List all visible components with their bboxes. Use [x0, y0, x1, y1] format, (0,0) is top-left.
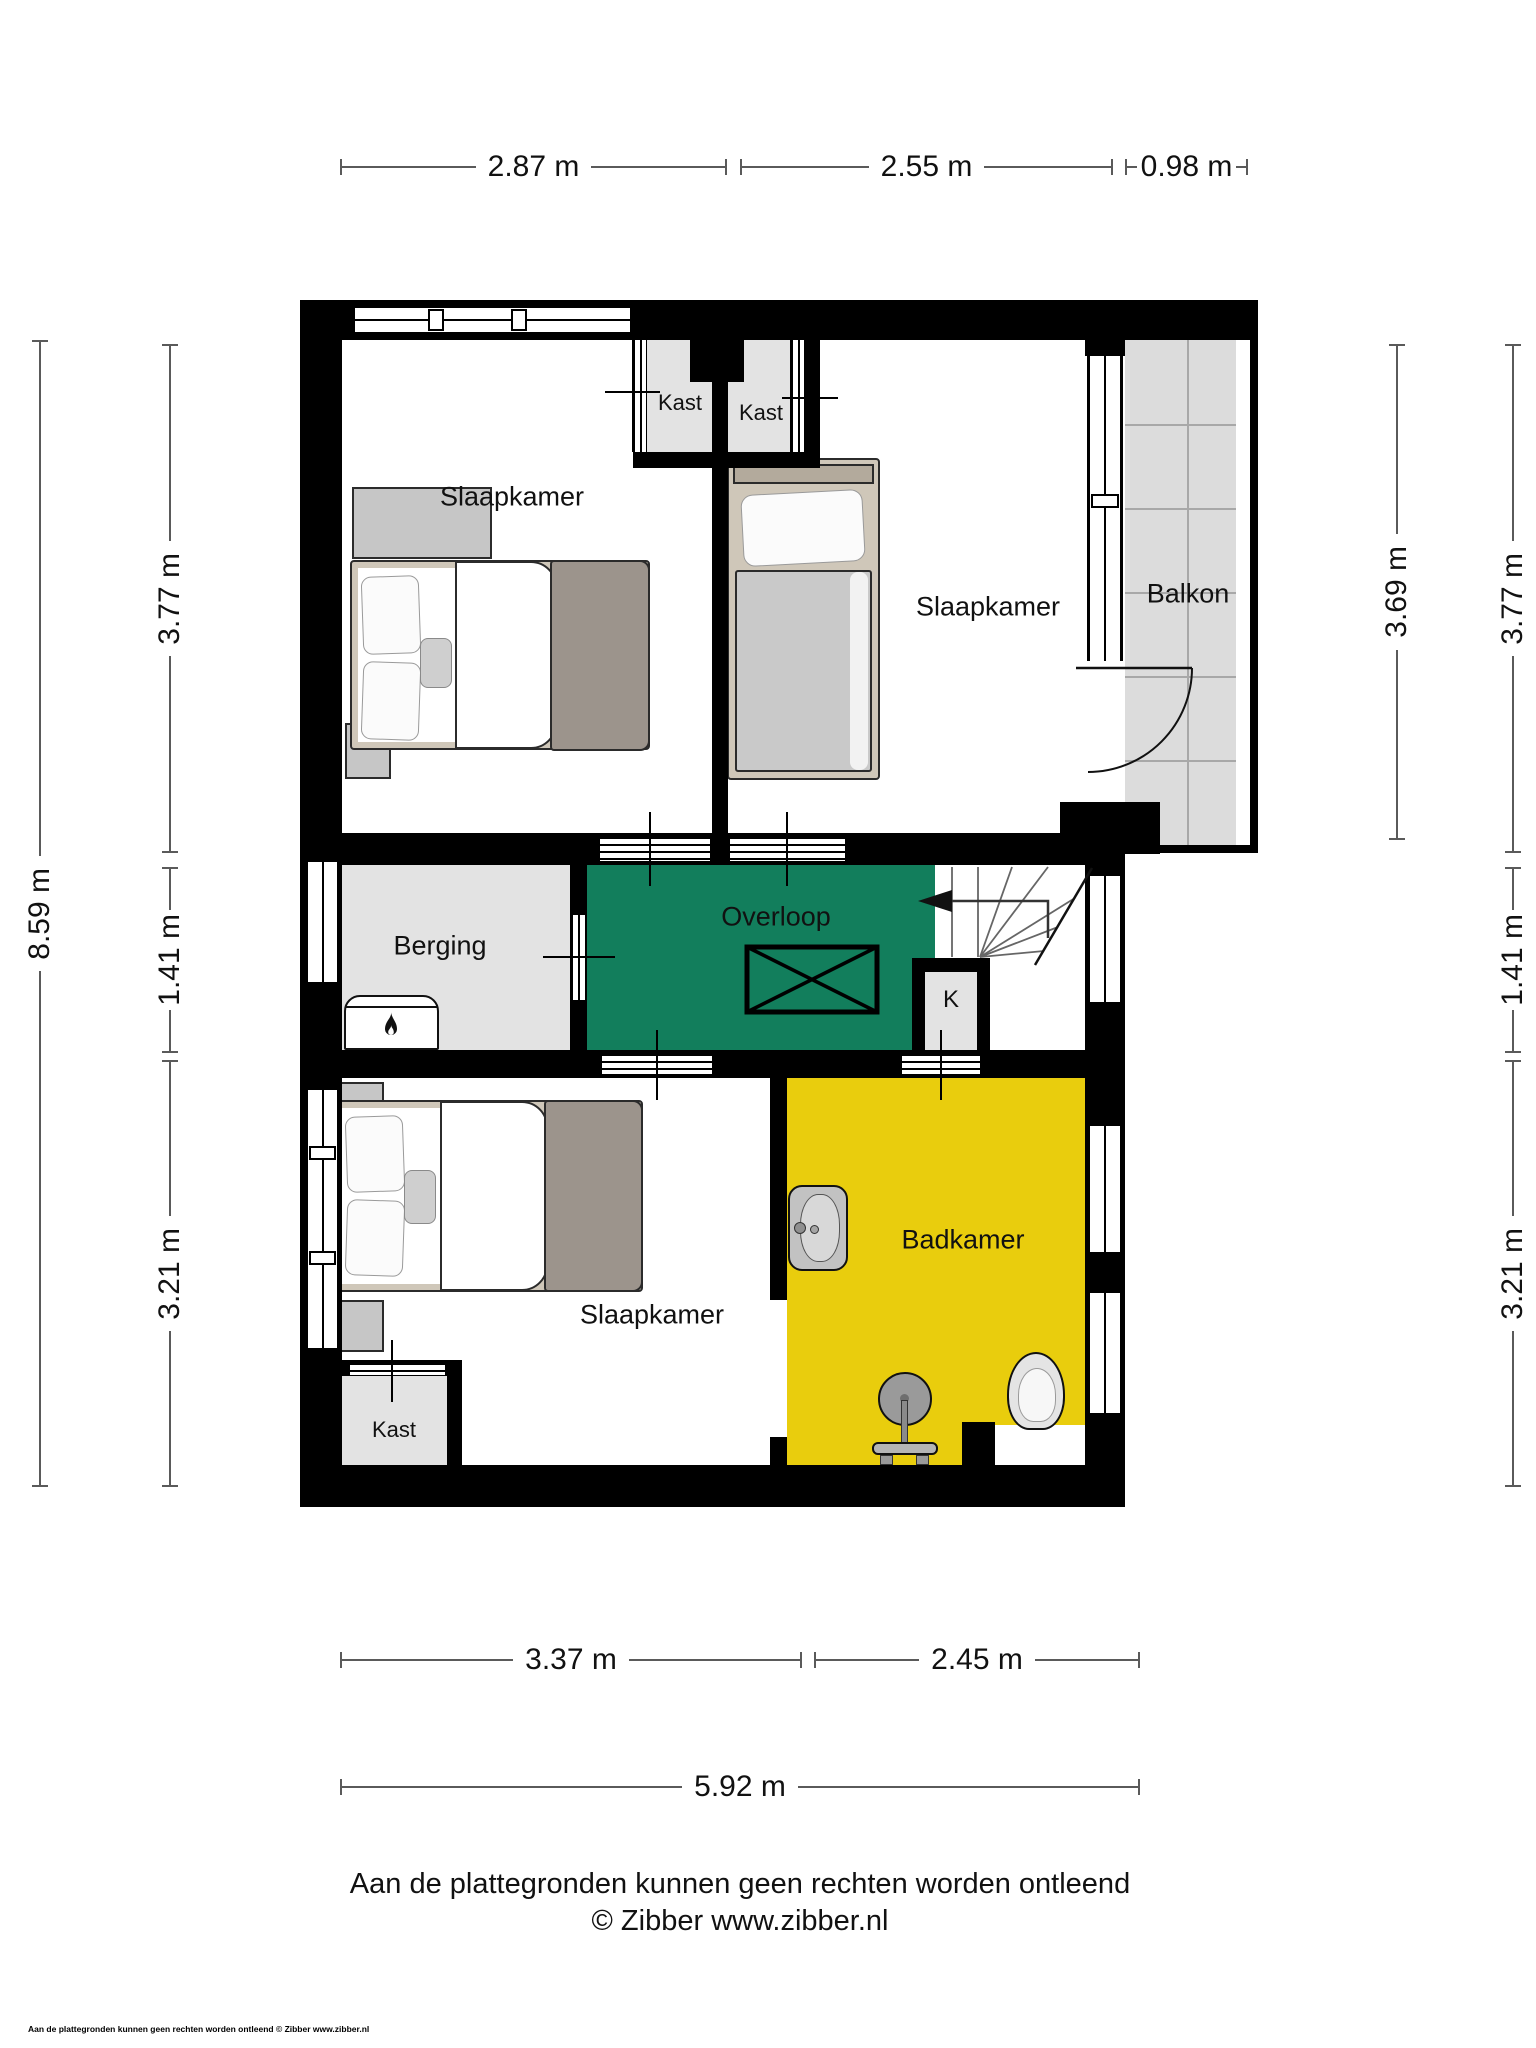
wall	[962, 1422, 995, 1467]
shower-faucet-bar	[872, 1442, 938, 1455]
stair-direction-line	[950, 901, 1048, 938]
pillow	[740, 489, 866, 567]
dimension-left-total: 8.59 m	[25, 340, 55, 1487]
room-label-balkon: Balkon	[1147, 579, 1230, 610]
cushion	[404, 1170, 436, 1224]
balcony-tile-line	[1125, 676, 1236, 678]
window	[355, 305, 630, 335]
floorplan-canvas: Slaapkamer Kast Kast Slaapkamer Balkon B…	[0, 0, 1536, 2048]
window-mullion	[511, 309, 527, 331]
toilet-seat	[1018, 1368, 1056, 1422]
wall	[570, 865, 587, 915]
wall	[977, 958, 990, 1050]
cushion	[420, 638, 452, 688]
balcony-parapet	[1250, 340, 1258, 853]
room-label-kast-3: Kast	[372, 1417, 416, 1443]
dimension-right-balkon: 3.69 m	[1382, 344, 1412, 840]
wall	[342, 833, 1085, 865]
door-kast-2	[790, 340, 805, 452]
window-mullion	[309, 1251, 336, 1265]
window-mullion	[1091, 494, 1119, 508]
door-kast-3	[350, 1362, 445, 1376]
room-label-kast-2: Kast	[739, 400, 783, 426]
pillow	[345, 1115, 406, 1193]
pillow	[361, 661, 422, 741]
dimension-right-2: 1.41 m	[1498, 867, 1528, 1053]
pillow	[361, 575, 422, 655]
staircase	[952, 867, 1075, 957]
balcony-glass-wall	[1087, 356, 1123, 661]
dimension-top-3: 0.98 m	[1125, 152, 1248, 182]
wall	[633, 452, 805, 468]
balcony-tile-line	[1125, 508, 1236, 510]
door-tick	[649, 812, 651, 886]
bed-blanket	[550, 560, 650, 751]
door-overloop-slaapkamer-1	[600, 836, 710, 862]
boiler	[344, 995, 439, 1050]
window	[1087, 876, 1123, 1002]
boiler-arch	[346, 997, 437, 1008]
room-overloop	[587, 865, 935, 1050]
room-label-slaapkamer-3: Slaapkamer	[580, 1300, 724, 1331]
wall	[447, 1360, 462, 1467]
toilet	[1007, 1352, 1065, 1430]
dimension-bottom-2: 2.45 m	[814, 1645, 1140, 1675]
wall	[770, 1078, 787, 1300]
balcony-edge-gap	[1236, 340, 1250, 845]
wall	[570, 1000, 587, 1050]
footer-disclaimer: Aan de plattegronden kunnen geen rechten…	[350, 1868, 1130, 1901]
room-label-berging: Berging	[393, 931, 486, 962]
window	[305, 1090, 340, 1348]
door-tick	[782, 397, 838, 399]
flame-icon	[379, 1011, 403, 1041]
shower-faucet-foot	[880, 1455, 893, 1465]
wall	[1085, 300, 1125, 356]
room-label-overloop: Overloop	[721, 902, 831, 933]
window-mullion	[309, 1146, 336, 1160]
wall	[912, 958, 925, 1050]
dimension-top-1: 2.87 m	[340, 152, 727, 182]
wall	[300, 1465, 1125, 1507]
door-tick	[786, 812, 788, 886]
sink-faucet-knob	[810, 1225, 819, 1234]
bed-sheet-edge	[850, 572, 868, 770]
window	[1087, 1293, 1123, 1413]
sink	[788, 1185, 848, 1271]
bed-sheet-fold	[440, 1101, 548, 1291]
room-label-slaapkamer-1: Slaapkamer	[440, 482, 584, 513]
door-tick	[940, 1030, 942, 1100]
room-label-meterkast: K	[943, 986, 959, 1014]
fineprint: Aan de plattegronden kunnen geen rechten…	[28, 2024, 369, 2034]
pillow	[345, 1199, 406, 1277]
door-tick	[656, 1030, 658, 1100]
bed-blanket	[544, 1100, 643, 1292]
sink-faucet	[794, 1222, 806, 1234]
door-kast-1	[632, 340, 647, 452]
door-tick	[543, 956, 615, 958]
wall	[770, 1437, 787, 1467]
dimension-left-3: 3.21 m	[155, 1060, 185, 1487]
dimension-top-2: 2.55 m	[740, 152, 1113, 182]
stair-cut-line	[1035, 868, 1092, 965]
balcony-tile-line	[1125, 424, 1236, 426]
room-label-kast-1: Kast	[658, 390, 702, 416]
dimension-right-1: 3.77 m	[1498, 344, 1528, 853]
window	[1087, 1126, 1123, 1252]
door-tick	[605, 391, 660, 393]
door-tick	[391, 1340, 393, 1402]
dimension-bottom-1: 3.37 m	[340, 1645, 802, 1675]
window	[305, 862, 340, 982]
footer-credit: © Zibber www.zibber.nl	[592, 1905, 889, 1938]
dimension-left-2: 1.41 m	[155, 867, 185, 1053]
shower-faucet-foot	[916, 1455, 929, 1465]
bed-sheet-fold	[455, 561, 557, 749]
dimension-bottom-total: 5.92 m	[340, 1772, 1140, 1802]
sink-basin	[800, 1194, 840, 1262]
dimension-right-3: 3.21 m	[1498, 1060, 1528, 1487]
room-label-badkamer: Badkamer	[901, 1225, 1024, 1256]
balcony-tile-line	[1125, 760, 1236, 762]
wall	[805, 300, 820, 468]
wall	[690, 300, 744, 382]
dimension-left-1: 3.77 m	[155, 344, 185, 853]
window-mullion	[428, 309, 444, 331]
toilet-niche	[995, 1425, 1085, 1467]
room-label-slaapkamer-2: Slaapkamer	[916, 592, 1060, 623]
